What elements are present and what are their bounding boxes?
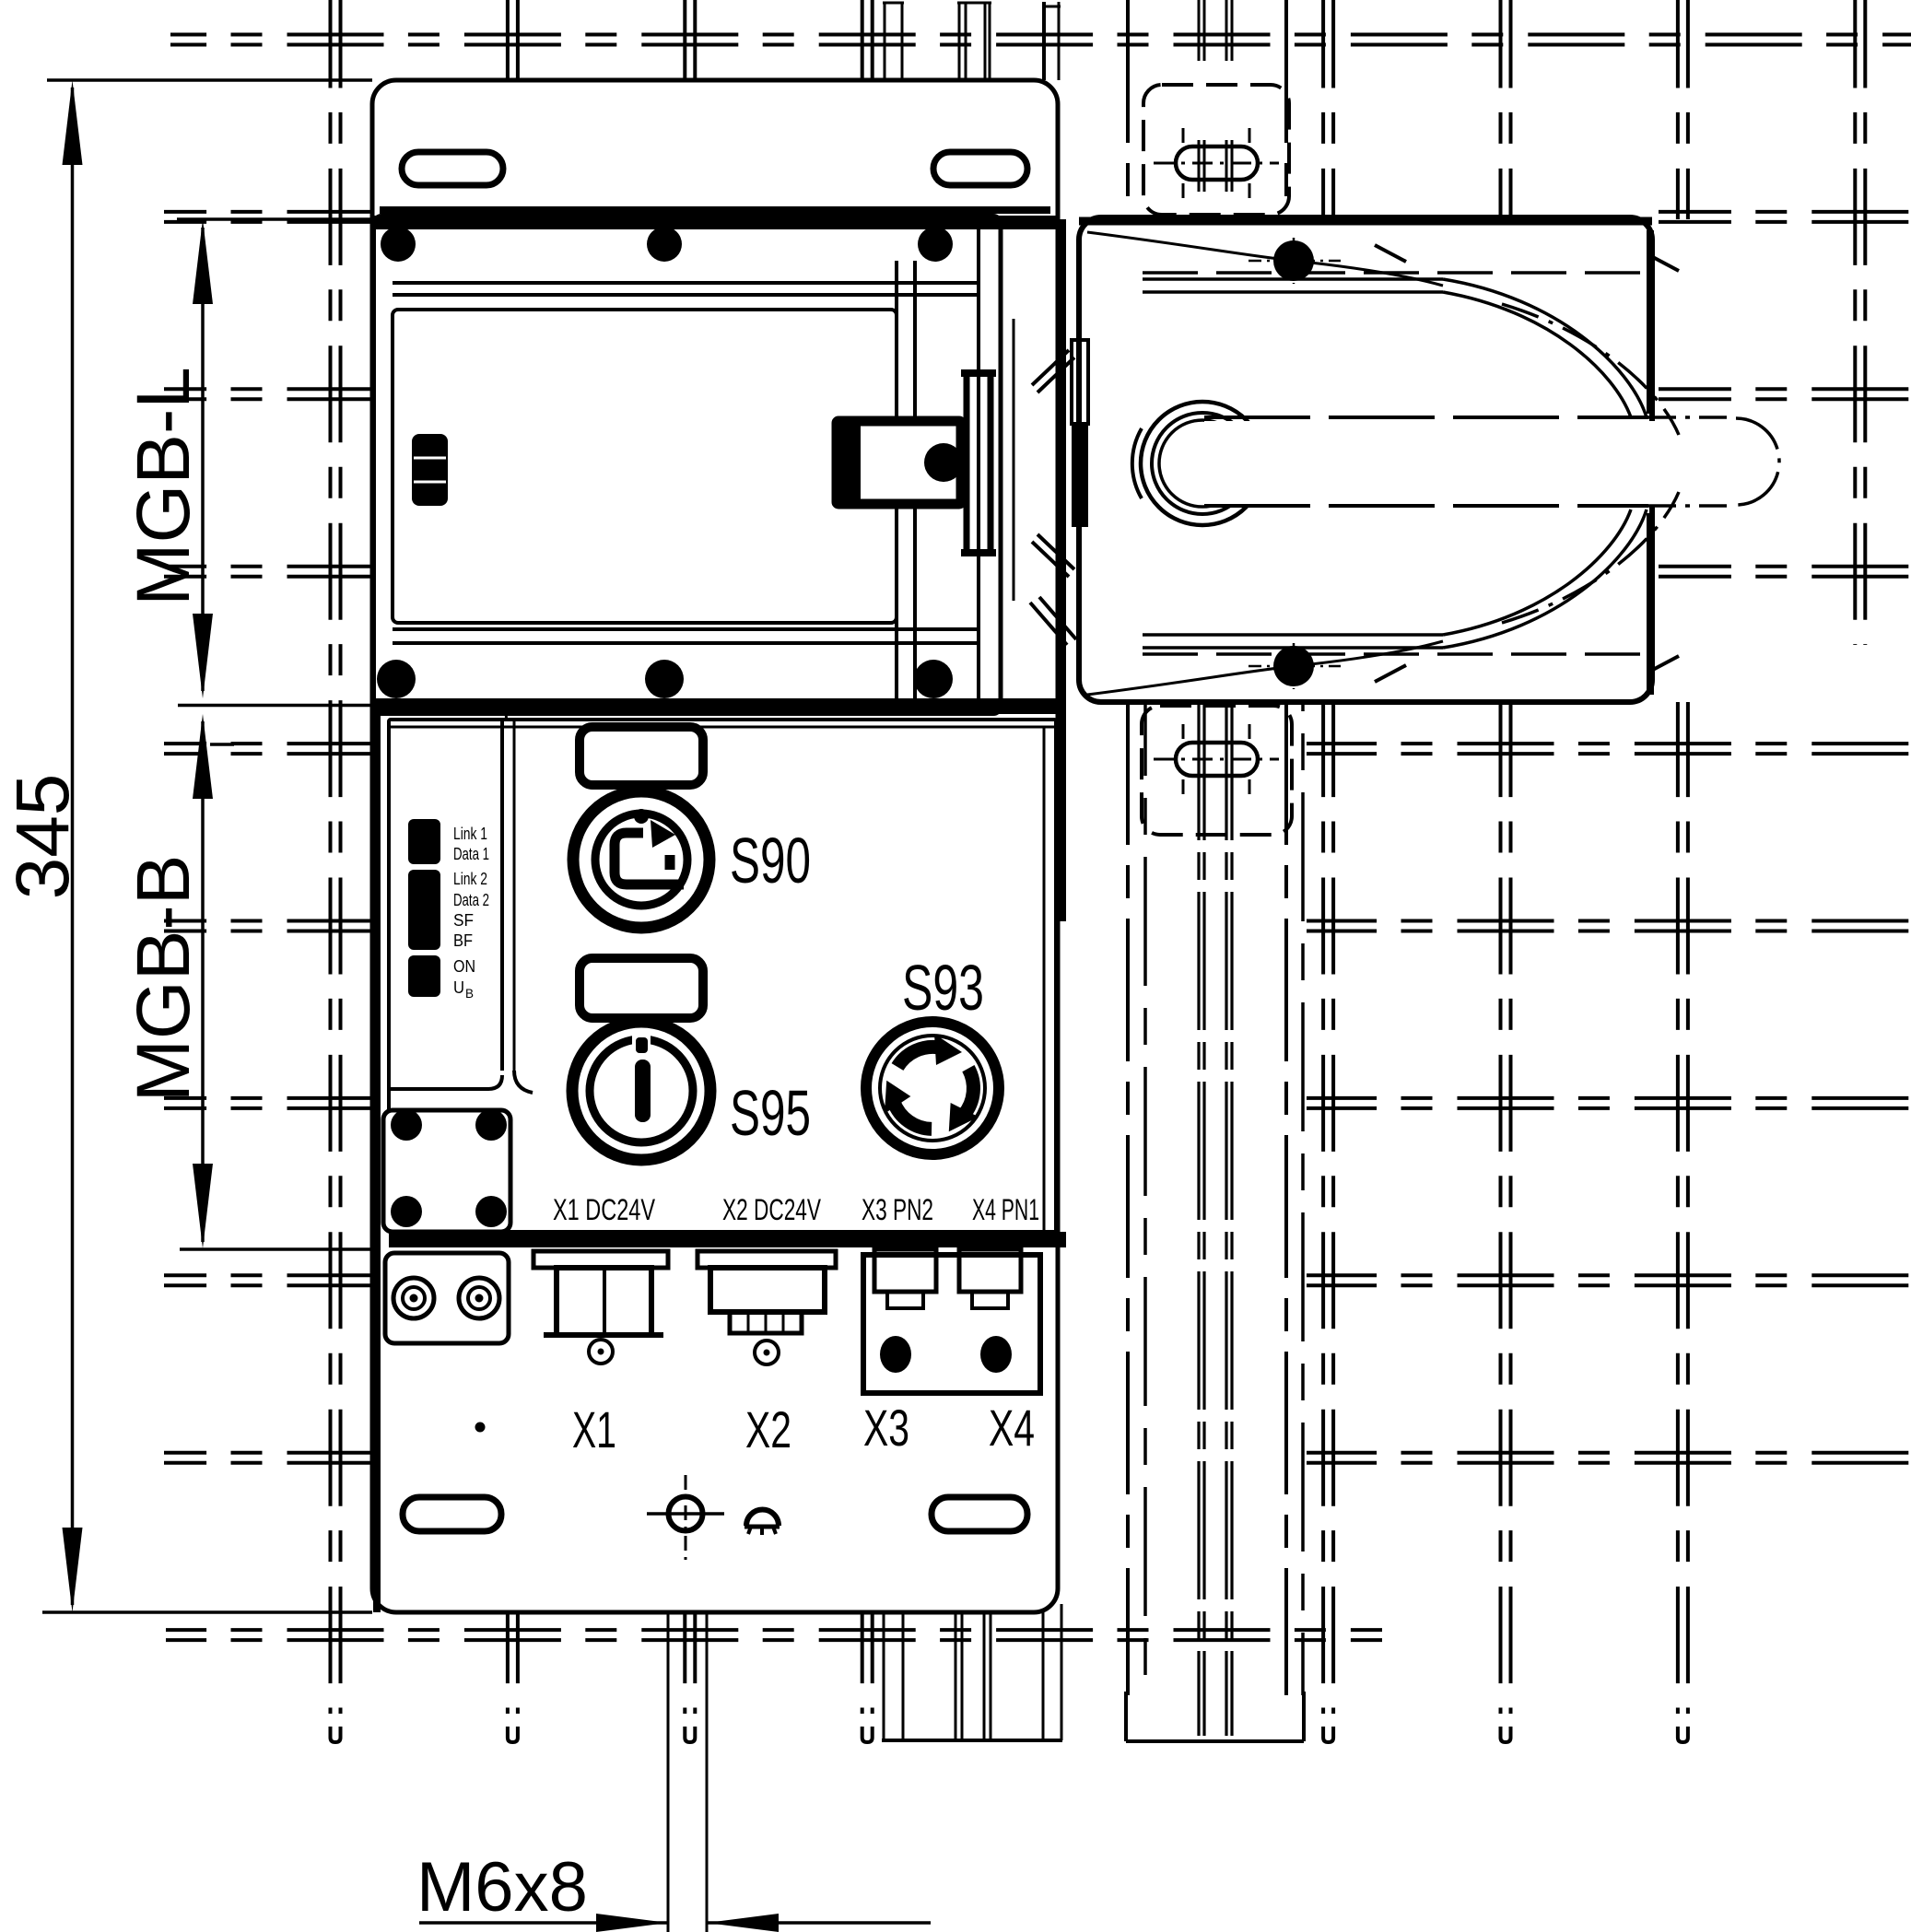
svg-text:BF: BF (453, 931, 473, 950)
svg-text:X4 PN1: X4 PN1 (972, 1193, 1039, 1226)
svg-text:SF: SF (453, 911, 474, 930)
svg-text:X1 DC24V: X1 DC24V (553, 1193, 655, 1226)
svg-text:X4: X4 (989, 1399, 1035, 1457)
svg-text:345: 345 (1, 774, 85, 900)
svg-text:M6x8: M6x8 (416, 1848, 588, 1926)
svg-text:B: B (465, 986, 474, 1001)
svg-text:X3: X3 (863, 1399, 909, 1457)
svg-text:S95: S95 (730, 1077, 811, 1149)
svg-text:U: U (453, 978, 464, 997)
svg-text:Data 2: Data 2 (453, 891, 489, 909)
svg-text:X2 DC24V: X2 DC24V (722, 1193, 821, 1226)
svg-text:Link 1: Link 1 (453, 825, 487, 843)
svg-text:X3 PN2: X3 PN2 (862, 1193, 933, 1226)
svg-text:MGB-L: MGB-L (122, 367, 205, 606)
svg-text:Data 1: Data 1 (453, 845, 489, 863)
svg-text:S93: S93 (902, 952, 984, 1024)
svg-text:Link 2: Link 2 (453, 870, 487, 888)
svg-text:X1: X1 (572, 1400, 616, 1458)
svg-text:MGB-B: MGB-B (122, 855, 205, 1103)
svg-text:S90: S90 (730, 825, 811, 896)
svg-text:X2: X2 (745, 1400, 791, 1458)
svg-text:ON: ON (453, 957, 475, 976)
